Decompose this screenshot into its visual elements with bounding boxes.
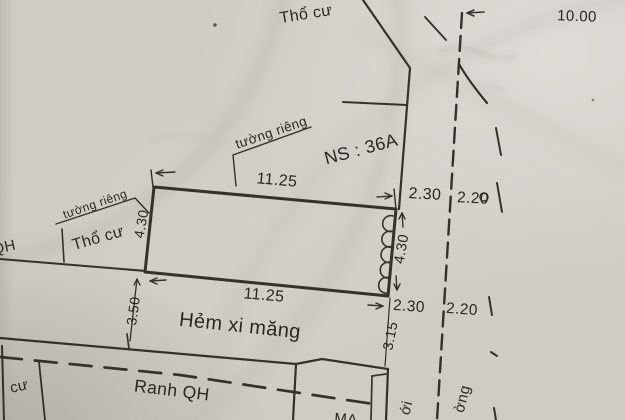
left-lot-divider bbox=[39, 362, 45, 420]
label-hem-xi-mang: Hẻm xi măng bbox=[178, 309, 302, 344]
label-letters-partial: MA bbox=[334, 410, 358, 420]
label-tho-cu-top: Thổ cư bbox=[278, 1, 333, 27]
label-road-partial-1: ới bbox=[397, 399, 417, 417]
west-boundary-line bbox=[0, 259, 146, 271]
west-boundary-tick bbox=[62, 229, 64, 262]
label-2-30-bottom: 2.30 bbox=[393, 297, 426, 316]
label-11-25-top: 11.25 bbox=[256, 170, 298, 190]
label-10-00: 10.00 bbox=[557, 7, 597, 25]
label-11-25-bottom: 11.25 bbox=[243, 285, 285, 305]
label-2-30-top: 2.30 bbox=[408, 185, 442, 204]
label-3-50: 3.50 bbox=[123, 295, 143, 326]
label-ranh-qh: Ranh QH bbox=[133, 375, 211, 404]
labels: Thổ cư 10.00 tường riêng NS : 36A 11.25 … bbox=[0, 1, 597, 420]
label-3-15: 3.15 bbox=[379, 320, 400, 351]
label-2-20-bottom: 2.20 bbox=[446, 300, 479, 319]
dim-arrow-10-00 bbox=[467, 10, 484, 16]
label-2-20-top: 2.20 bbox=[457, 189, 490, 208]
label-road-partial-2: ờng bbox=[451, 383, 474, 414]
cadastral-drawing: Thổ cư 10.00 tường riêng NS : 36A 11.25 … bbox=[0, 0, 625, 420]
label-cu-partial: cư bbox=[8, 376, 30, 397]
survey-photo: Thổ cư 10.00 tường riêng NS : 36A 11.25 … bbox=[0, 0, 625, 420]
